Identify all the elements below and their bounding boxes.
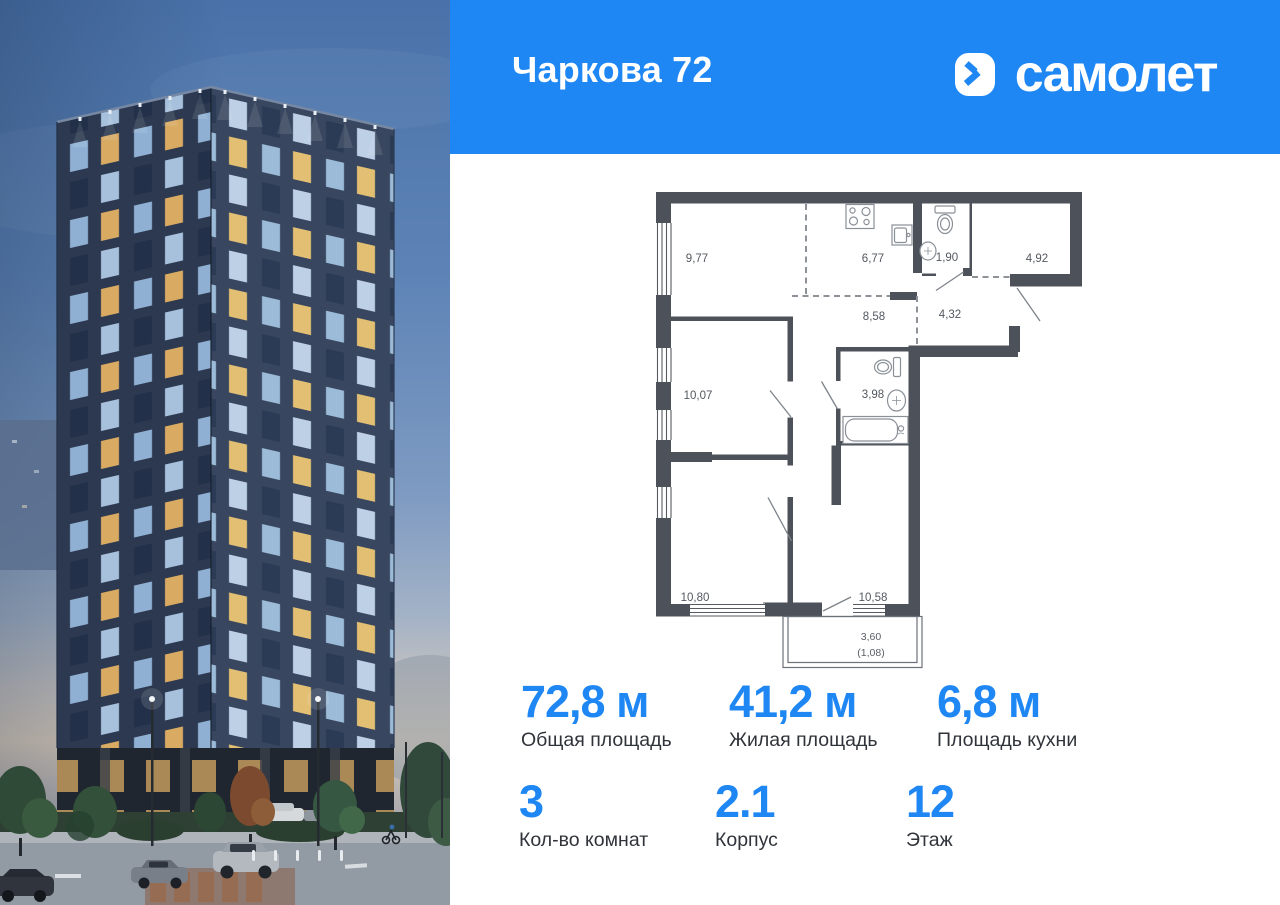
apartment-card: Чаркова 72 самолет — [0, 0, 1280, 905]
kitchen-sink-icon — [892, 225, 912, 245]
room-area-label-bathroom: 3,98 — [862, 389, 884, 401]
tower — [57, 87, 394, 815]
stat-kitchen-area-label: Площадь кухни — [937, 728, 1077, 752]
stat-building-number-value: 2.1 — [715, 779, 778, 824]
stat-living-area: 41,2 м Жилая площадь — [729, 679, 878, 752]
balcony-reduced-area-label: (1,08) — [857, 647, 884, 659]
balcony-area-label: 3,60 — [861, 631, 882, 643]
room-area-label-bedroom-top: 9,77 — [686, 253, 708, 265]
stat-total-area: 72,8 м Общая площадь — [521, 679, 672, 752]
room-area-label-bedroom-middle: 10,07 — [684, 390, 713, 402]
stat-total-area-value: 72,8 м — [521, 679, 672, 724]
stat-total-area-label: Общая площадь — [521, 728, 672, 752]
interior-walls — [656, 203, 972, 617]
stat-rooms-count-label: Кол-во комнат — [519, 828, 648, 852]
wc-toilet-icon — [935, 206, 955, 234]
stat-building-number-label: Корпус — [715, 828, 778, 852]
stat-kitchen-area: 6,8 м Площадь кухни — [937, 679, 1077, 752]
room-area-label-wc: 1,90 — [936, 252, 958, 264]
stat-kitchen-area-value: 6,8 м — [937, 679, 1077, 724]
stat-building-number: 2.1 Корпус — [715, 779, 778, 852]
bathtub-icon — [843, 417, 908, 444]
room-area-label-living-room: 10,58 — [859, 592, 888, 604]
brand-name: самолет — [1015, 48, 1217, 100]
stat-floor: 12 Этаж — [906, 779, 954, 852]
page-title: Чаркова 72 — [512, 52, 713, 88]
stove-icon — [846, 205, 874, 229]
room-area-label-corridor: 8,58 — [863, 311, 885, 323]
stat-rooms-count-value: 3 — [519, 779, 648, 824]
header-bar: Чаркова 72 самолет — [450, 0, 1280, 154]
samolet-logo: самолет — [955, 48, 1217, 100]
bathroom-sink-icon — [888, 390, 906, 411]
room-area-label-bedroom-bottom: 10,80 — [681, 592, 710, 604]
stat-floor-value: 12 — [906, 779, 954, 824]
floor-plan: 9,77 6,77 1,90 4,92 8,58 4,32 10,07 3,98… — [656, 190, 1082, 670]
samolet-logo-icon — [955, 53, 995, 96]
stat-living-area-value: 41,2 м — [729, 679, 878, 724]
bathroom-toilet-icon — [875, 358, 901, 377]
balcony — [783, 617, 922, 668]
stat-living-area-label: Жилая площадь — [729, 728, 878, 752]
stat-floor-label: Этаж — [906, 828, 954, 852]
building-photo — [0, 0, 450, 905]
room-area-label-entry-hall: 4,92 — [1026, 253, 1048, 265]
stat-rooms-count: 3 Кол-во комнат — [519, 779, 648, 852]
room-area-label-kitchen: 6,77 — [862, 253, 884, 265]
wc-sink-icon — [920, 242, 936, 260]
room-area-label-hall: 4,32 — [939, 309, 961, 321]
